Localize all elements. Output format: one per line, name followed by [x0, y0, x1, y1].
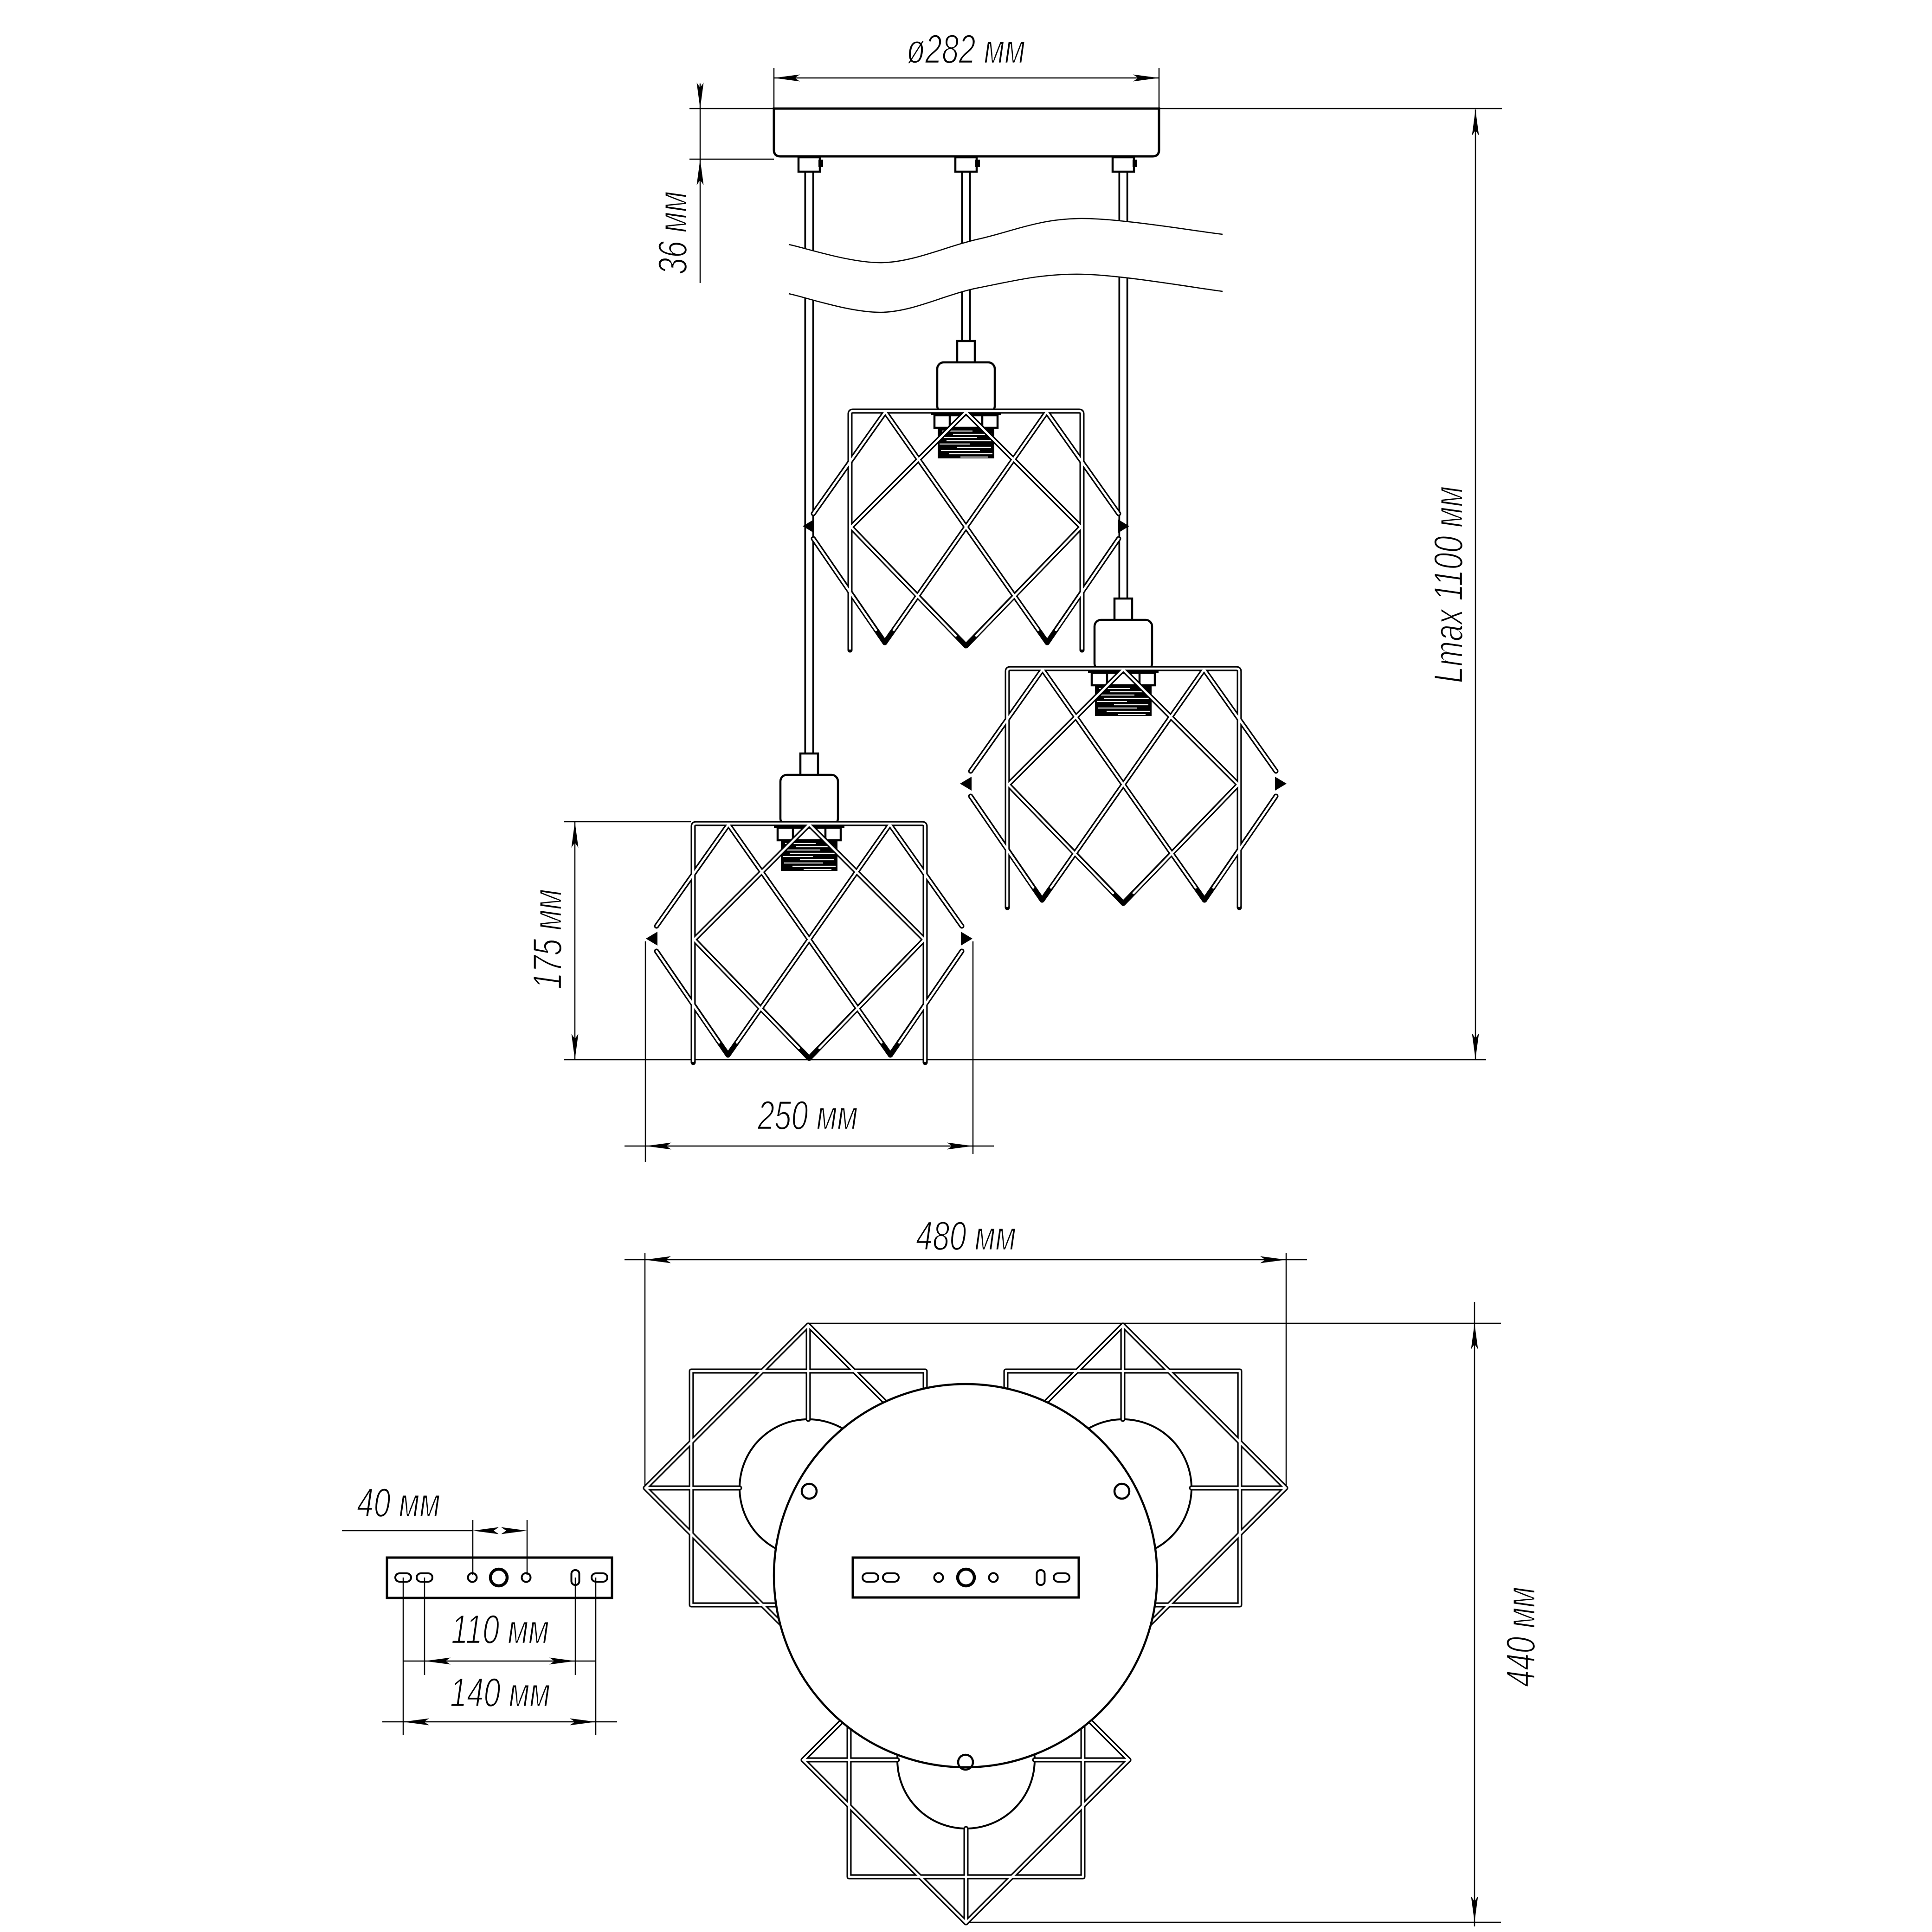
svg-text:140 мм: 140 мм — [450, 1670, 550, 1716]
svg-text:440 мм: 440 мм — [1499, 1587, 1544, 1687]
svg-text:36 мм: 36 мм — [650, 191, 696, 275]
svg-text:110 мм: 110 мм — [451, 1607, 549, 1653]
svg-text:Lmax 1100 мм: Lmax 1100 мм — [1426, 486, 1472, 683]
svg-text:40 мм: 40 мм — [357, 1481, 440, 1526]
svg-text:175 мм: 175 мм — [525, 889, 571, 989]
svg-text:250 мм: 250 мм — [757, 1093, 858, 1139]
svg-text:ø282 мм: ø282 мм — [907, 27, 1025, 72]
svg-text:480 мм: 480 мм — [916, 1214, 1016, 1259]
